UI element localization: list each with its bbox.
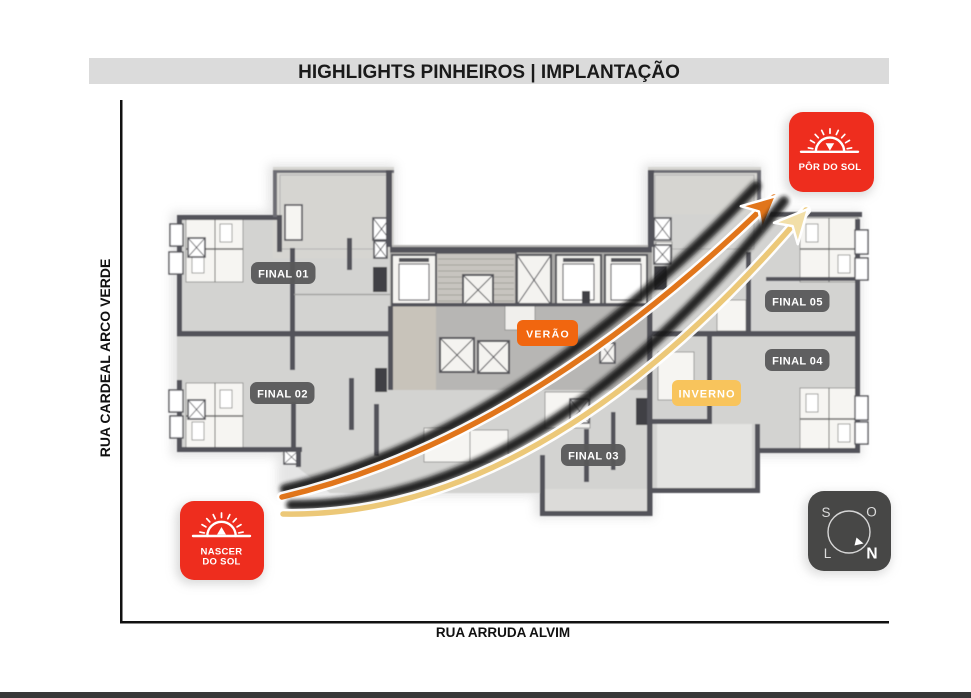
svg-text:O: O (866, 505, 877, 520)
svg-text:PÔR DO SOL: PÔR DO SOL (799, 161, 862, 173)
svg-text:FINAL 02: FINAL 02 (257, 389, 308, 401)
svg-text:N: N (866, 546, 877, 563)
svg-text:RUA CARDEAL ARCO VERDE: RUA CARDEAL ARCO VERDE (97, 259, 113, 458)
svg-text:DO SOL: DO SOL (202, 557, 240, 568)
svg-text:S: S (821, 505, 830, 520)
svg-text:HIGHLIGHTS PINHEIROS | IMPLANT: HIGHLIGHTS PINHEIROS | IMPLANTAÇÃO (298, 61, 680, 83)
svg-text:FINAL 05: FINAL 05 (772, 297, 823, 309)
svg-text:FINAL 04: FINAL 04 (772, 356, 823, 368)
svg-text:L: L (824, 546, 832, 561)
svg-text:FINAL 01: FINAL 01 (258, 269, 309, 281)
svg-text:INVERNO: INVERNO (678, 389, 735, 401)
svg-text:RUA ARRUDA ALVIM: RUA ARRUDA ALVIM (436, 625, 570, 640)
svg-text:VERÃO: VERÃO (526, 328, 570, 341)
svg-text:FINAL 03: FINAL 03 (568, 451, 619, 463)
